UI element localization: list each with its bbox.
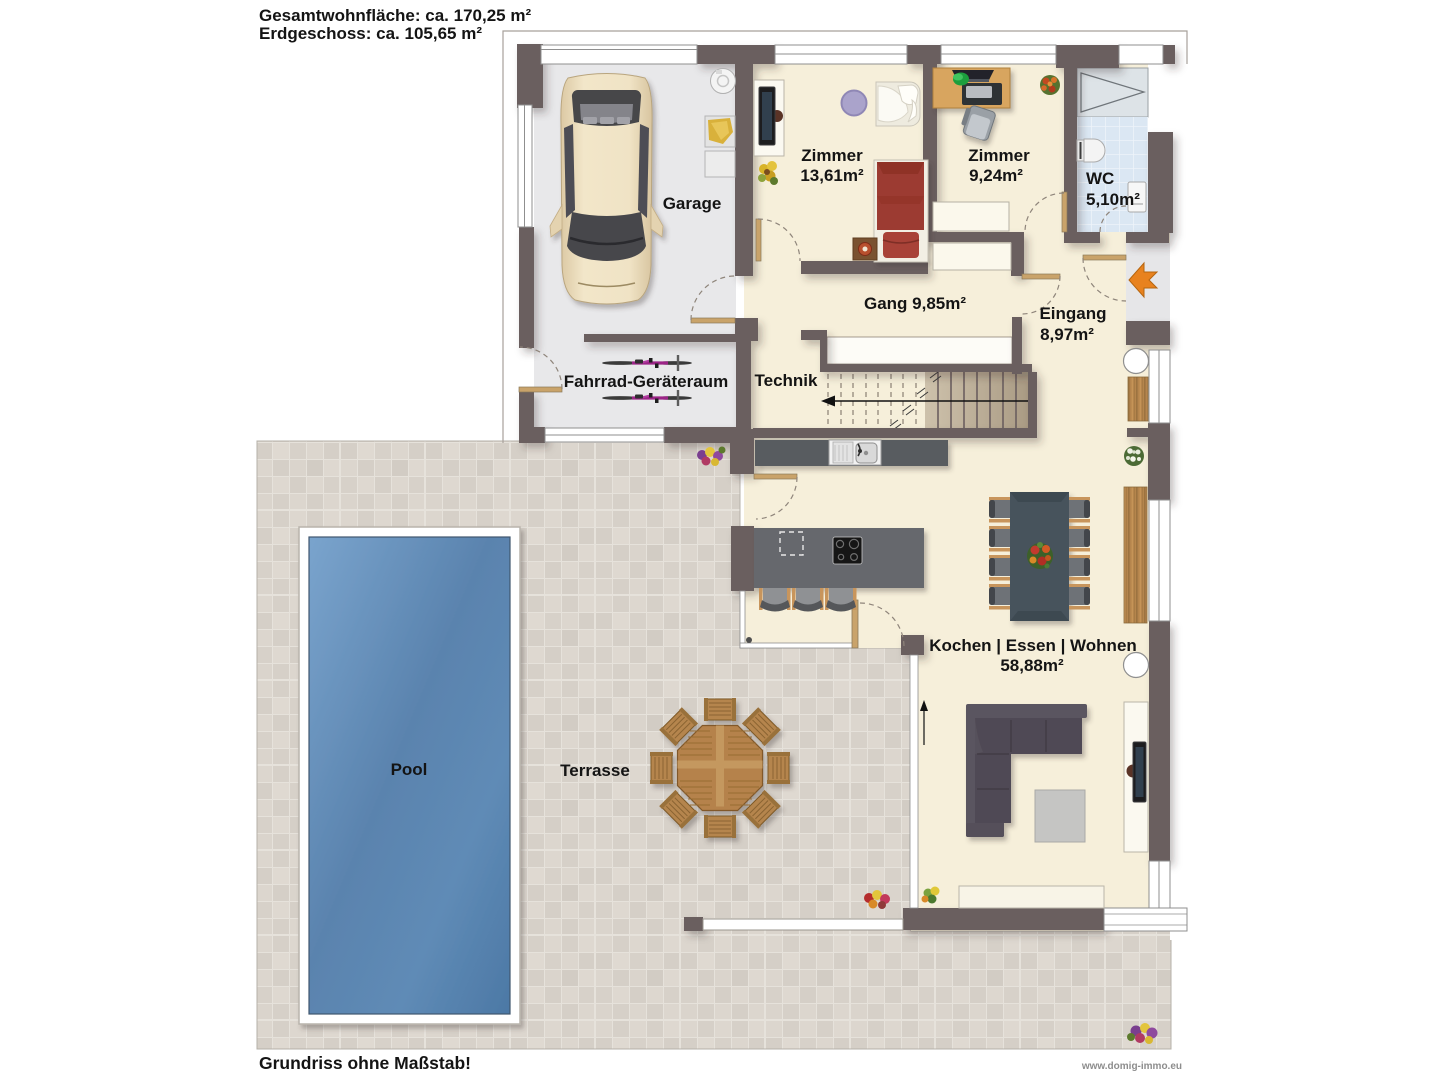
svg-text:Gang 9,85m²: Gang 9,85m² (864, 294, 966, 313)
svg-text:Grundriss ohne Maßstab!: Grundriss ohne Maßstab! (259, 1053, 471, 1073)
svg-text:Technik: Technik (755, 371, 819, 390)
svg-text:5,10m²: 5,10m² (1086, 190, 1140, 209)
svg-text:8,97m²: 8,97m² (1040, 325, 1094, 344)
svg-text:Zimmer: Zimmer (801, 146, 863, 165)
svg-text:13,61m²: 13,61m² (800, 166, 864, 185)
svg-text:Zimmer: Zimmer (968, 146, 1030, 165)
svg-text:Kochen | Essen | Wohnen: Kochen | Essen | Wohnen (929, 636, 1137, 655)
svg-text:Eingang: Eingang (1039, 304, 1106, 323)
svg-text:Fahrrad-Geräteraum: Fahrrad-Geräteraum (564, 372, 728, 391)
svg-text:www.domig-immo.eu: www.domig-immo.eu (1081, 1061, 1182, 1072)
svg-text:Garage: Garage (663, 194, 722, 213)
svg-text:WC: WC (1086, 169, 1114, 188)
svg-text:58,88m²: 58,88m² (1000, 656, 1064, 675)
svg-text:Gesamtwohnfläche: ca. 170,25 m: Gesamtwohnfläche: ca. 170,25 m² (259, 6, 531, 25)
svg-text:Pool: Pool (391, 760, 428, 779)
svg-text:Terrasse: Terrasse (560, 761, 630, 780)
svg-text:Erdgeschoss: ca. 105,65 m²: Erdgeschoss: ca. 105,65 m² (259, 24, 482, 43)
svg-text:9,24m²: 9,24m² (969, 166, 1023, 185)
